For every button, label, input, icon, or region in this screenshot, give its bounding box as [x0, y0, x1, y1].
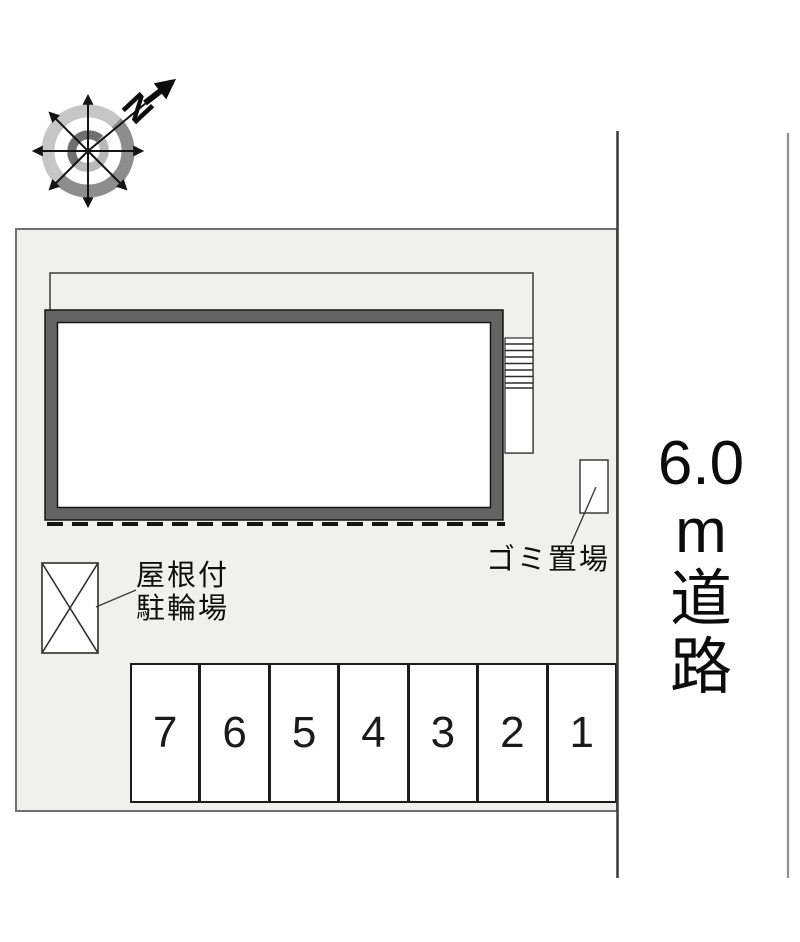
parking-space-number: 3 [431, 708, 455, 758]
parking-space: 1 [546, 665, 615, 801]
road-width-value: 6.0 [612, 430, 790, 498]
parking-space-number: 4 [361, 708, 385, 758]
parking-space: 3 [407, 665, 476, 801]
parking-space-number: 7 [153, 708, 177, 758]
site-plan-canvas: 7 6 5 4 3 2 1 ゴミ置場 屋根付 駐輪場 6.0 m 道 路 [0, 0, 800, 942]
parking-space-number: 6 [222, 708, 246, 758]
road-width-label: 6.0 m 道 路 [612, 430, 790, 702]
road-kanji-1: 道 [612, 566, 790, 634]
parking-space: 2 [476, 665, 545, 801]
compass-icon: N [34, 82, 172, 206]
compass-star [34, 96, 152, 206]
compass-ring-inner-light [76, 139, 104, 167]
parking-space: 6 [198, 665, 267, 801]
compass-ring-inner-dark [72, 135, 100, 163]
road-kanji-2: 路 [612, 634, 790, 702]
parking-space: 4 [337, 665, 406, 801]
parking-space: 5 [268, 665, 337, 801]
bicycle-parking-label: 屋根付 駐輪場 [136, 560, 229, 626]
north-arrow-icon [145, 82, 172, 103]
parking-space-number: 5 [292, 708, 316, 758]
parking-space-number: 1 [570, 708, 594, 758]
parking-space: 7 [132, 665, 198, 801]
parking-space-number: 2 [500, 708, 524, 758]
road-width-unit: m [612, 498, 790, 566]
bicycle-parking-label-line1: 屋根付 [136, 560, 229, 593]
compass-ring-outer-dark [60, 123, 128, 191]
garbage-area-label: ゴミ置場 [486, 544, 610, 577]
north-label: N [114, 85, 162, 132]
compass-ring-outer-light [48, 111, 116, 179]
bicycle-parking-label-line2: 駐輪場 [136, 593, 229, 626]
parking-row: 7 6 5 4 3 2 1 [130, 663, 617, 803]
